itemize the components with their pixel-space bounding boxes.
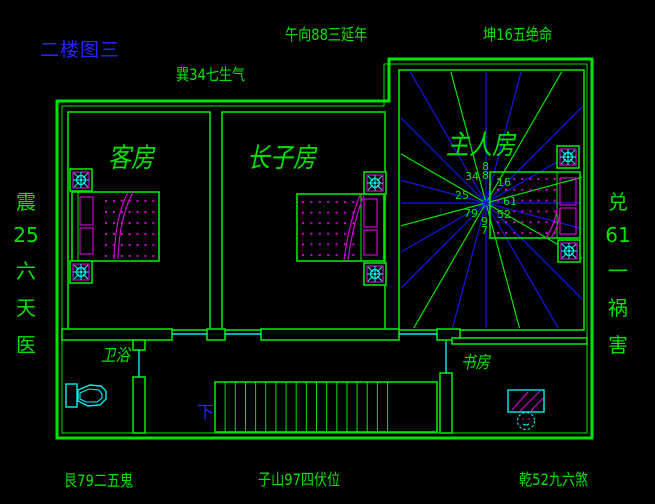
floor-plan-canvas: 二楼图三 巽34七生气 午向88三延年 坤16五绝命 艮79二五鬼 子山97四伏… [0, 0, 655, 504]
stair-treads [225, 382, 387, 432]
center-number-north: 97 [481, 217, 488, 235]
center-number-east: 25 [455, 190, 469, 201]
light-fixture-icon [70, 261, 92, 283]
compass-center-point [484, 201, 489, 206]
compass-label-south: 午向88三延年 [285, 21, 367, 45]
desk-icon [508, 390, 544, 412]
room-label-guest: 客房 [108, 136, 154, 175]
light-fixture-icon [364, 263, 386, 285]
bed-pillow [80, 228, 93, 254]
bed-pillow [80, 197, 93, 225]
compass-label-southwest: 坤16五绝命 [483, 21, 552, 45]
chair-icon [518, 413, 535, 430]
center-number-west: 61 [503, 196, 517, 207]
toilet-icon [66, 384, 106, 407]
light-fixture-icon [557, 146, 579, 168]
light-fixture-icon [364, 172, 386, 194]
mattress-dots [105, 200, 154, 257]
compass-label-southeast: 巽34七生气 [176, 61, 245, 85]
stairs-down-label: 下 [197, 398, 214, 423]
mattress-dots [302, 201, 354, 256]
compass-label-northeast: 艮79二五鬼 [64, 467, 133, 491]
bed-pillow [364, 199, 377, 227]
bed-pillow [560, 208, 576, 234]
compass-label-west: 兑 61 一 祸 害 [603, 186, 633, 358]
compass-label-east: 震 25 六 天 医 [11, 186, 41, 358]
bed-pillow [364, 230, 377, 255]
compass-label-northwest: 乾52九六煞 [519, 466, 588, 490]
room-label-master: 主人房 [446, 123, 515, 162]
center-number-northeast: 79 [464, 208, 478, 219]
room-label-bathroom: 卫浴 [101, 341, 130, 366]
center-number-south: 88 [482, 162, 489, 180]
light-fixture-icon [70, 169, 92, 191]
center-number-southwest: 16 [497, 177, 511, 188]
drawing-title: 二楼图三 [40, 35, 120, 62]
room-label-eldest-son: 长子房 [247, 136, 316, 175]
bed-guest-room [72, 192, 159, 261]
bed-eldest-son-room [297, 194, 384, 261]
compass-label-north: 子山97四伏位 [258, 466, 340, 490]
center-number-southeast: 34 [465, 171, 479, 182]
light-fixture-icon [558, 240, 580, 262]
floor-plan-drawing [0, 0, 655, 504]
staircase [215, 382, 437, 432]
study-wall [440, 373, 452, 433]
room-label-study: 书房 [461, 348, 490, 373]
center-number-northwest: 52 [497, 209, 511, 220]
